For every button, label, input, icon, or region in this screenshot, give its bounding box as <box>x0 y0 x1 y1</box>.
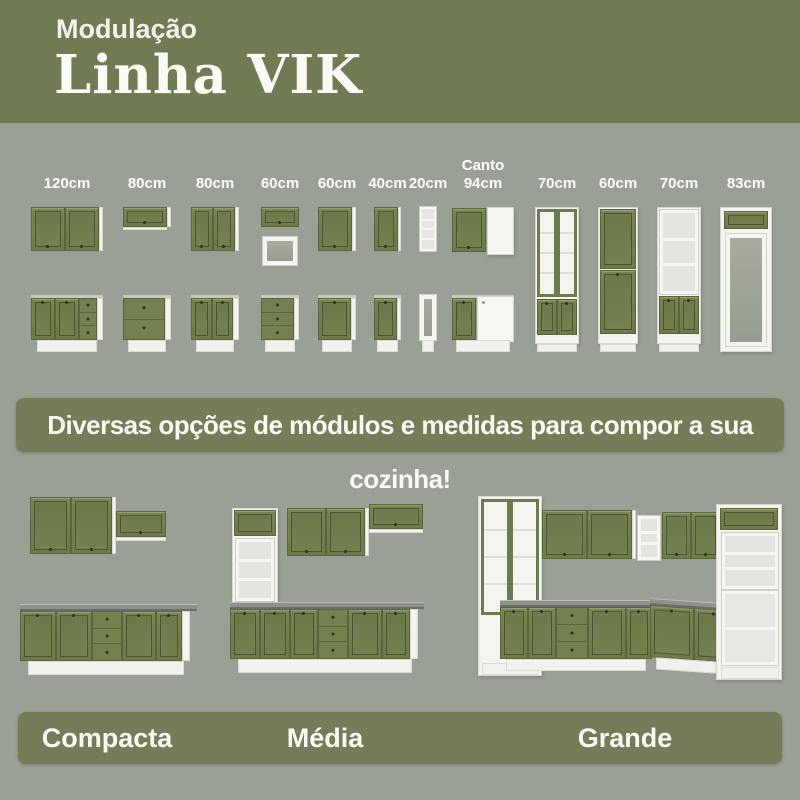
fridge-niche <box>726 234 766 346</box>
base-shelf-column <box>420 295 436 352</box>
base-cabinet <box>318 295 356 352</box>
cabinet-plinth <box>238 659 412 673</box>
cabinet-door <box>452 208 486 252</box>
base-cabinet-run <box>500 607 652 659</box>
cabinet-door <box>260 609 290 659</box>
cabinet-plinth <box>128 340 166 352</box>
cabinet-door <box>71 497 112 554</box>
cabinet-door <box>31 298 55 340</box>
cabinet-plinth <box>506 659 646 671</box>
cabinet-door <box>230 609 260 659</box>
kitchen-media-illustration <box>228 490 468 690</box>
drawer-stack <box>556 607 588 659</box>
cabinet-door <box>600 209 636 269</box>
wall-flip-cabinet <box>116 511 166 541</box>
module-column-canto-94cm: Canto 94cm <box>452 123 514 395</box>
cabinet-door <box>30 497 71 554</box>
wall-cabinet <box>30 497 116 554</box>
cabinet-bottom-panel <box>116 537 166 541</box>
flip-door <box>720 508 778 530</box>
cabinet-plinth <box>456 340 510 352</box>
cabinet-door <box>557 299 577 335</box>
cabinet-door <box>537 299 557 335</box>
cabinet-plinth <box>659 344 699 352</box>
corner-white-panel <box>487 207 514 255</box>
cabinet-side-panel <box>398 207 401 251</box>
cabinet-side-panel <box>294 298 299 340</box>
open-shelves <box>236 539 274 601</box>
glass-door <box>510 499 539 615</box>
size-label-media: Média <box>245 712 405 764</box>
cabinet-door <box>31 207 65 251</box>
cabinet-plinth <box>28 661 184 675</box>
module-size-label: 83cm <box>690 175 800 192</box>
cabinet-side-panel <box>352 207 356 251</box>
header: Modulação Linha VIK <box>0 0 800 123</box>
page-title: Linha VIK <box>54 44 362 106</box>
base-cabinet <box>123 295 171 352</box>
module-column-70cm-tall: 70cm <box>535 123 579 395</box>
cabinet-plinth <box>537 344 577 352</box>
cabinet-door <box>662 512 691 559</box>
base-cabinet <box>261 295 299 352</box>
cabinet-side-panel <box>167 207 171 227</box>
size-bar: Compacta Média Grande <box>18 712 782 764</box>
base-cabinet <box>191 295 239 352</box>
cabinet-door <box>65 207 99 251</box>
kitchen-grande-illustration <box>472 488 796 693</box>
base-cabinet-run <box>20 611 190 661</box>
tall-glass-cabinet <box>535 207 579 344</box>
module-size-line2: 94cm <box>464 175 502 192</box>
wall-cabinet <box>374 207 401 251</box>
cabinet-side-panel <box>99 207 103 251</box>
cabinet-door <box>650 605 694 660</box>
header-kicker: Modulação <box>56 14 197 45</box>
glass-door <box>537 209 557 297</box>
countertop <box>500 600 652 607</box>
base-cabinet-run <box>230 609 418 659</box>
cabinet-bottom-panel <box>369 529 423 533</box>
wall-cabinet <box>191 207 239 251</box>
flip-door <box>261 207 299 227</box>
countertop <box>20 604 197 611</box>
drawer-stack <box>261 298 294 340</box>
cabinet-plinth <box>322 340 352 352</box>
wall-cabinet-with-niche <box>261 207 299 267</box>
tall-hutch-cabinet <box>232 508 278 604</box>
glass-door <box>557 209 577 297</box>
cabinet-door <box>326 508 365 556</box>
cabinet-side-panel <box>233 298 239 340</box>
cabinet-door <box>588 607 626 659</box>
module-column-80cm: 80cm <box>123 123 171 395</box>
cabinet-door <box>287 508 326 556</box>
tall-open-cabinet <box>657 207 701 344</box>
flip-door <box>234 510 276 536</box>
tall-pantry-cabinet <box>716 504 782 680</box>
kitchen-compacta-illustration <box>18 490 214 690</box>
drawer-stack <box>79 298 97 340</box>
cabinet-door <box>659 296 679 334</box>
promo-page: Modulação Linha VIK 120cm 80cm <box>0 0 800 800</box>
open-shelves <box>722 533 778 589</box>
cabinet-door <box>374 298 397 340</box>
fridge-surround-cabinet <box>720 207 772 352</box>
cabinet-door <box>626 607 652 659</box>
wall-cabinet <box>662 512 720 559</box>
cabinet-door <box>542 510 587 559</box>
cabinet-plinth <box>196 340 234 352</box>
cabinet-side-panel <box>397 298 401 340</box>
cabinet-door <box>318 298 351 340</box>
cabinet-plinth <box>265 340 295 352</box>
countertop <box>230 602 424 609</box>
module-column-60cm: 60cm <box>261 123 299 395</box>
module-column-40cm: 40cm <box>374 123 401 395</box>
wall-flip-cabinet <box>369 504 423 533</box>
corner-white-door <box>477 296 514 342</box>
wall-cabinet <box>123 207 171 231</box>
open-shelves <box>660 210 698 294</box>
cabinet-plinth <box>377 340 398 352</box>
cabinet-door <box>452 298 476 340</box>
wall-cabinet <box>287 508 369 556</box>
open-niche <box>420 295 436 340</box>
cabinet-door <box>679 296 699 334</box>
module-column-60cm-tall: 60cm <box>598 123 638 395</box>
cabinet-door <box>191 298 212 340</box>
corner-base-cabinet <box>452 295 514 352</box>
cabinet-door <box>500 607 528 659</box>
size-label-compacta: Compacta <box>27 712 187 764</box>
size-label-grande: Grande <box>545 712 705 764</box>
module-column-60cm-2: 60cm <box>318 123 356 395</box>
cabinet-plinth <box>422 340 434 352</box>
tall-cabinet <box>598 207 638 344</box>
cabinet-plinth <box>37 340 97 352</box>
cabinet-door <box>55 298 79 340</box>
cabinet-side-panel <box>410 609 418 659</box>
cabinet-side-panel <box>165 298 171 340</box>
module-column-83cm: 83cm <box>720 123 772 395</box>
flip-door <box>116 511 166 537</box>
cabinet-plinth <box>721 667 779 679</box>
module-column-120cm: 120cm <box>31 123 103 395</box>
open-shelf-column <box>420 207 436 251</box>
wall-cabinet <box>31 207 103 251</box>
cabinet-door <box>156 611 182 661</box>
cabinet-door <box>587 510 632 559</box>
microwave-niche <box>263 237 297 265</box>
cabinet-side-panel <box>351 298 356 340</box>
base-cabinet <box>374 295 401 352</box>
cabinet-door <box>374 207 398 251</box>
cabinet-door <box>191 207 213 251</box>
cabinet-door <box>600 270 636 334</box>
cabinet-door <box>528 607 556 659</box>
wall-cabinet <box>318 207 356 251</box>
cabinet-side-panel <box>182 611 190 661</box>
flip-door <box>369 504 423 529</box>
cabinet-door <box>212 298 233 340</box>
wall-cabinet <box>542 510 636 559</box>
flip-door <box>123 207 167 227</box>
cabinet-door <box>348 609 382 659</box>
module-column-80cm-2: 80cm <box>191 123 239 395</box>
cabinet-door <box>290 609 318 659</box>
base-cabinet <box>31 295 103 352</box>
cabinet-side-panel <box>97 298 103 340</box>
cabinet-door <box>122 611 156 661</box>
drawer-stack <box>123 298 165 340</box>
glass-door <box>481 499 510 615</box>
cabinet-door <box>213 207 235 251</box>
corner-wall-cabinet <box>452 207 514 257</box>
cabinet-door <box>56 611 92 661</box>
open-shelf-unit <box>638 516 660 560</box>
cabinet-bottom-panel <box>123 227 167 230</box>
drawer-stack <box>318 609 348 659</box>
cabinet-door <box>20 611 56 661</box>
flip-door <box>724 211 768 229</box>
banner: Diversas opções de módulos e medidas par… <box>16 398 784 452</box>
cabinet-side-panel <box>235 207 239 251</box>
cabinet-door <box>382 609 410 659</box>
cabinet-side-panel <box>632 510 636 559</box>
cabinet-plinth <box>600 344 636 352</box>
drawer-stack <box>92 611 122 661</box>
module-size-line1: Canto <box>462 157 505 174</box>
open-shelves <box>722 591 778 665</box>
module-column-70cm-tall-2: 70cm <box>657 123 701 395</box>
cabinet-door <box>318 207 352 251</box>
